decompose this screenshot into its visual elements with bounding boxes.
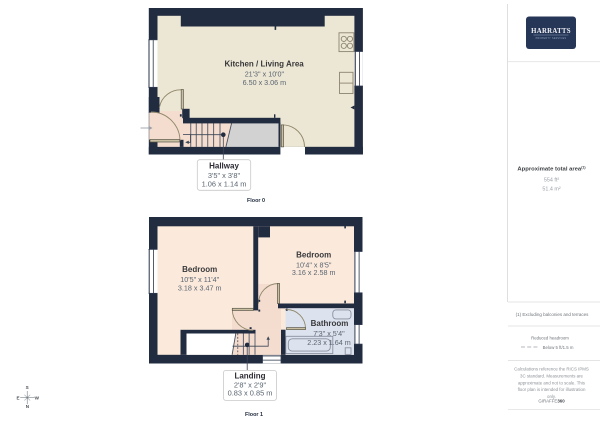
svg-text:N: N: [26, 404, 30, 409]
svg-text:3'5" x 3'8": 3'5" x 3'8": [208, 171, 241, 180]
svg-text:Below 5 ft/1.5 m: Below 5 ft/1.5 m: [543, 345, 574, 350]
svg-text:PROPERTY SERVICES: PROPERTY SERVICES: [536, 37, 567, 40]
svg-text:Floor 1: Floor 1: [245, 412, 263, 418]
svg-text:554 ft²: 554 ft²: [544, 177, 559, 183]
svg-text:0.83 x 0.85 m: 0.83 x 0.85 m: [228, 389, 273, 398]
svg-text:Bathroom: Bathroom: [311, 319, 349, 328]
svg-text:Approximate total area(1): Approximate total area(1): [517, 166, 586, 173]
svg-text:Hallway: Hallway: [209, 161, 239, 170]
svg-text:S: S: [26, 385, 29, 390]
svg-text:2.23 x 1.64 m: 2.23 x 1.64 m: [307, 338, 351, 347]
svg-text:3.18 x 3.47 m: 3.18 x 3.47 m: [178, 284, 222, 293]
svg-text:HARRATTS: HARRATTS: [531, 28, 571, 35]
svg-text:Floor 0: Floor 0: [247, 198, 265, 204]
svg-text:6.50 x 3.06 m: 6.50 x 3.06 m: [243, 78, 287, 87]
svg-text:Bedroom: Bedroom: [182, 265, 217, 274]
svg-text:3C standard. Measurements are: 3C standard. Measurements are: [520, 373, 584, 378]
svg-text:Reduced headroom: Reduced headroom: [531, 336, 569, 341]
svg-text:7'3" x 5'4": 7'3" x 5'4": [313, 329, 345, 338]
svg-text:W: W: [35, 395, 40, 400]
svg-text:1.06 x 1.14 m: 1.06 x 1.14 m: [202, 180, 247, 189]
svg-text:GIRAFFE360: GIRAFFE360: [538, 398, 565, 403]
svg-text:51.4 m²: 51.4 m²: [542, 186, 560, 192]
svg-text:floor plan is intended for ill: floor plan is intended for illustration: [518, 387, 586, 392]
svg-text:Landing: Landing: [234, 372, 265, 381]
svg-text:Calculations reference the RIC: Calculations reference the RICS IPMS: [514, 367, 589, 372]
svg-text:E: E: [16, 395, 19, 400]
svg-text:Kitchen / Living Area: Kitchen / Living Area: [224, 59, 304, 68]
svg-text:approximate and not to scale.: approximate and not to scale. This: [518, 380, 586, 385]
svg-text:Bedroom: Bedroom: [296, 251, 331, 260]
svg-text:(1) Excluding balconies and te: (1) Excluding balconies and terraces: [516, 312, 590, 317]
svg-text:3.16 x 2.58 m: 3.16 x 2.58 m: [292, 268, 336, 277]
